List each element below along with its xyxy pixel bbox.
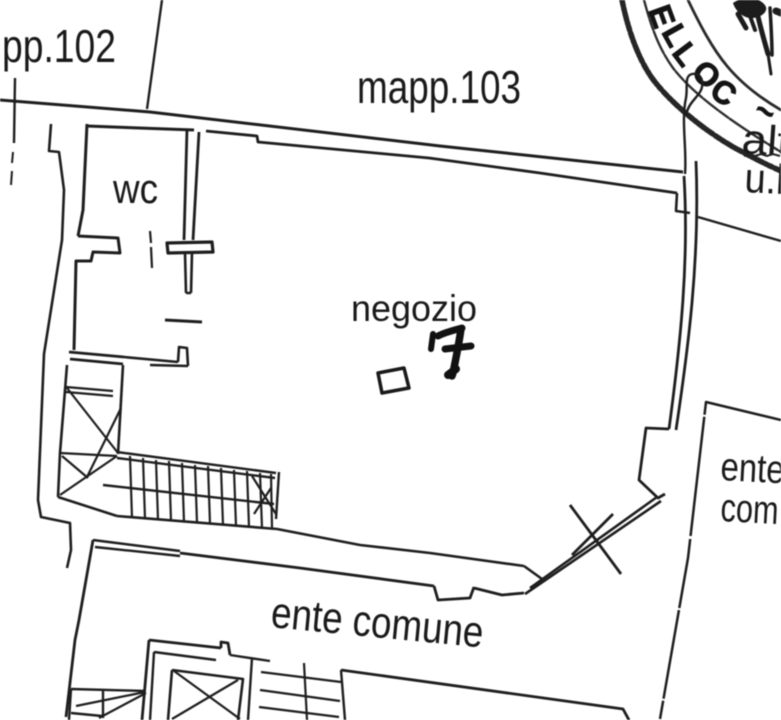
svg-text:ente: ente xyxy=(720,445,781,492)
svg-text:wc: wc xyxy=(112,165,158,212)
svg-text:negozio: negozio xyxy=(351,288,477,329)
svg-text:mapp.103: mapp.103 xyxy=(357,61,521,113)
svg-text:pp.102: pp.102 xyxy=(2,20,116,72)
svg-text:com: com xyxy=(720,486,780,533)
svg-text:u.l: u.l xyxy=(744,154,781,203)
